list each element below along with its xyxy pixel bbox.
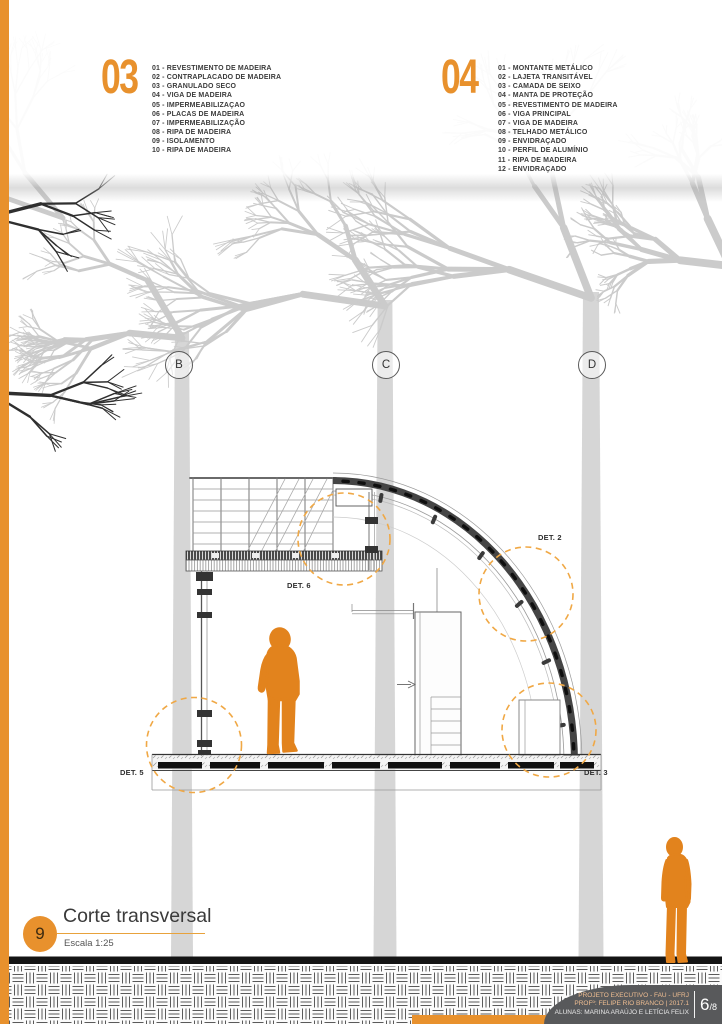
- credits-line2: PROFº: FELIPE RIO BRANCO | 2017.1: [555, 1000, 689, 1008]
- legend-item: 07 - VIGA DE MADEIRA: [498, 119, 718, 128]
- project-credits: PROJETO EXECUTIVO - FAU - UFRJ PROFº: FE…: [555, 992, 689, 1017]
- grid-bubble-c: C: [372, 351, 400, 379]
- legend-item: 03 - GRANULADO SECO: [152, 82, 372, 91]
- direction-arrow: [397, 681, 415, 688]
- interior-partition: [352, 568, 461, 756]
- det5-circle: [147, 698, 242, 793]
- footer-separator: [694, 991, 695, 1018]
- legend-03: 03: [101, 58, 150, 98]
- page-number-total: /8: [709, 1003, 717, 1012]
- det2-label: DET. 2: [538, 533, 562, 542]
- ground-line: [0, 957, 722, 965]
- floor-label-blocks: [158, 762, 594, 769]
- legend-03-number: 03: [101, 58, 138, 97]
- dark-branch-silhouette: [1, 174, 115, 271]
- legend-item: 08 - RIPA DE MADEIRA: [152, 128, 372, 137]
- person-figure-scale: [662, 838, 691, 962]
- legend-item: 02 - CONTRAPLACADO DE MADEIRA: [152, 73, 372, 82]
- title-underline: [57, 933, 205, 934]
- cabinet-box: [519, 700, 560, 755]
- tree-silhouette: [0, 32, 75, 320]
- det3-label: DET. 3: [584, 768, 608, 777]
- det6-label: DET. 6: [287, 581, 311, 590]
- legend-item: 10 - RIPA DE MADEIRA: [152, 146, 372, 155]
- legend-item: 09 - ISOLAMENTO: [152, 137, 372, 146]
- person-figure-section: [259, 627, 299, 753]
- presentation-sheet: 03 01 - REVESTIMENTO DE MADEIRA02 - CONT…: [0, 0, 722, 1024]
- page-number-current: 6: [700, 996, 709, 1013]
- gutter-box: [336, 489, 372, 506]
- sheet-scale: Escala 1:25: [64, 938, 114, 949]
- legend-item: 04 - MANTA DE PROTEÇÃO: [498, 91, 718, 100]
- legend-item: 07 - IMPERMEABILIZAÇÃO: [152, 119, 372, 128]
- deck-slab: [186, 551, 382, 571]
- credits-line1: PROJETO EXECUTIVO - FAU - UFRJ: [555, 992, 689, 1000]
- balcony-railing: [190, 478, 336, 552]
- legend-item: 06 - VIGA PRINCIPAL: [498, 110, 718, 119]
- legend-item: 05 - IMPERMEABILIZAÇAO: [152, 101, 372, 110]
- det5-label: DET. 5: [120, 768, 144, 777]
- steel-column: [196, 572, 213, 755]
- tree-silhouette: [8, 199, 193, 958]
- legend-03-items: 01 - REVESTIMENTO DE MADEIRA02 - CONTRAP…: [152, 64, 372, 156]
- legend-item: 10 - PERFIL DE ALUMÍNIO: [498, 146, 718, 155]
- door-panel: [415, 612, 461, 756]
- drawing-number-badge: 9: [23, 916, 57, 952]
- left-accent-bar: [0, 0, 9, 1024]
- legend-item: 01 - MONTANTE METÁLICO: [498, 64, 718, 73]
- legend-item: 08 - TELHADO METÁLICO: [498, 128, 718, 137]
- legend-item: 02 - LAJETA TRANSITÁVEL: [498, 73, 718, 82]
- grid-bubble-b: B: [165, 351, 193, 379]
- legend-04-items: 01 - MONTANTE METÁLICO02 - LAJETA TRANSI…: [498, 64, 718, 174]
- legend-item: 11 - RIPA DE MADEIRA: [498, 156, 718, 165]
- grid-bubble-d: D: [578, 351, 606, 379]
- page-number: 6 /8: [700, 996, 717, 1013]
- legend-item: 12 - ENVIDRAÇADO: [498, 165, 718, 174]
- sheet-title: Corte transversal: [63, 905, 211, 928]
- legend-item: 04 - VIGA DE MADEIRA: [152, 91, 372, 100]
- legend-04: 04: [441, 58, 490, 98]
- dark-branch-silhouette: [1, 355, 142, 452]
- legend-item: 09 - ENVIDRAÇADO: [498, 137, 718, 146]
- legend-item: 01 - REVESTIMENTO DE MADEIRA: [152, 64, 372, 73]
- legend-item: 05 - REVESTIMENTO DE MADEIRA: [498, 101, 718, 110]
- legend-item: 06 - PLACAS DE MADEIRA: [152, 110, 372, 119]
- credits-line3: ALUNAS: MARINA ARAÚJO E LETÍCIA FELIX: [555, 1009, 689, 1017]
- legend-item: 03 - CAMADA DE SEIXO: [498, 82, 718, 91]
- legend-04-number: 04: [441, 58, 478, 97]
